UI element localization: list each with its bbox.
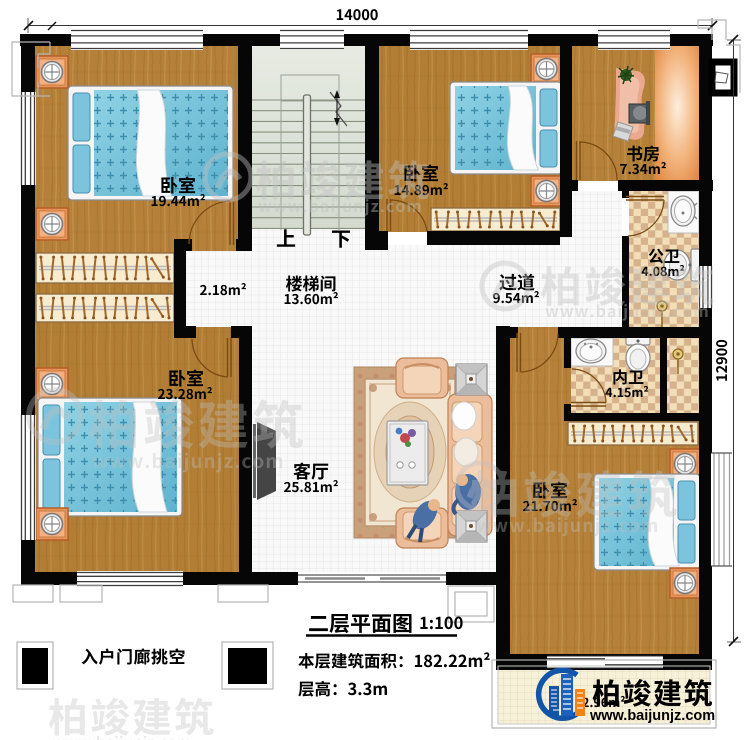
- svg-text:www.baijunjz.com: www.baijunjz.com: [589, 708, 715, 724]
